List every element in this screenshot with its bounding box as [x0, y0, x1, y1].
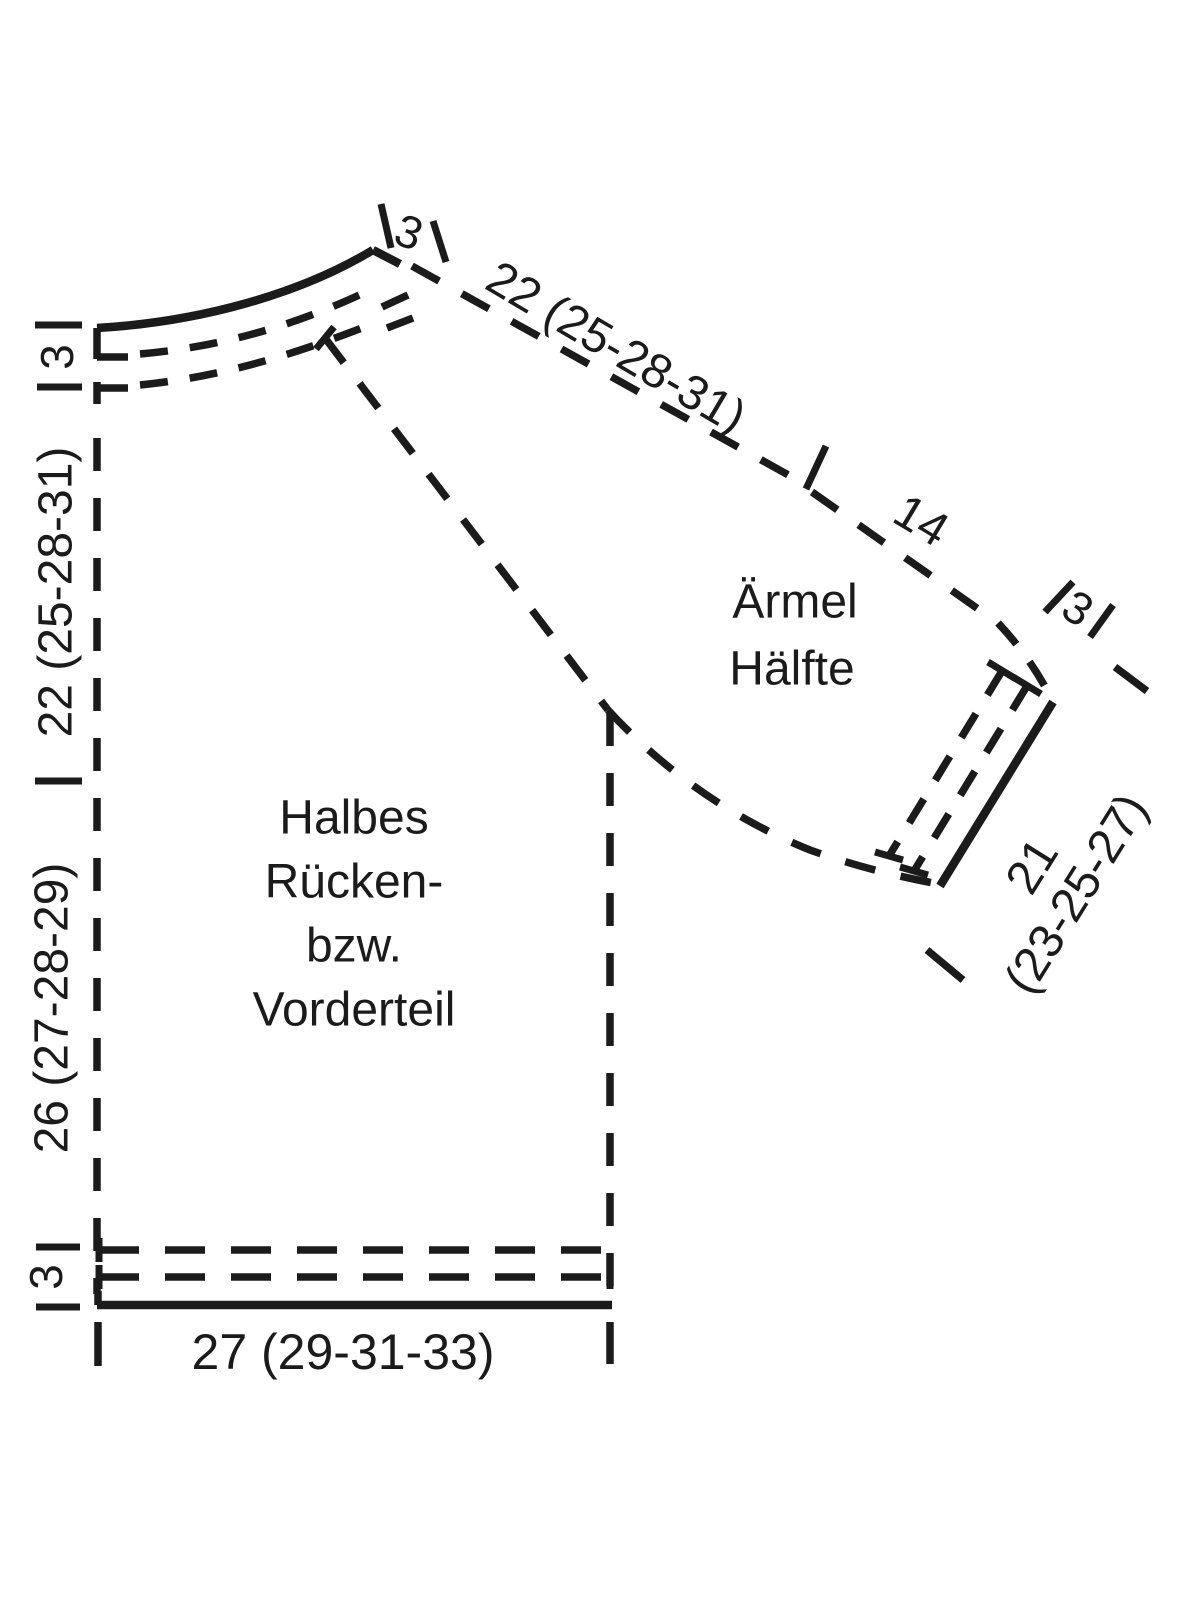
shoulder-junction-dash2 [387, 318, 413, 328]
sleeve-piece-label: Ärmel Hälfte [729, 576, 857, 696]
shoulder-3-bar-right [433, 221, 446, 262]
neckband-depth-label: 3 [31, 344, 83, 370]
neckline-curve [97, 250, 373, 328]
cuff-width-line2: (23-25-27) [995, 785, 1159, 1003]
sleeve-raglan-length-label: 22 (25-28-31) [477, 251, 754, 444]
sleeve-raglan-edge [412, 266, 801, 482]
knitting-pattern-schematic: 3 3 22 (25-28-31) 26 (27-28-29) 3 27 (29… [0, 0, 1200, 1600]
body-label-line4: Vorderteil [253, 984, 456, 1037]
body-raglan-edge [325, 338, 608, 710]
cuff-width-label: 21 (23-25-27) [950, 757, 1158, 1003]
body-label-line3: bzw. [306, 920, 402, 973]
hem-width-label: 27 (29-31-33) [192, 1324, 495, 1380]
body-piece-label: Halbes Rücken- bzw. Vorderteil [253, 792, 456, 1037]
cuff-dashed-line2 [889, 671, 1002, 856]
sleeve-label-line2: Hälfte [729, 643, 854, 696]
body-side-height-label: 26 (27-28-29) [26, 863, 79, 1154]
cuff-3-bar-bottom [1090, 605, 1113, 637]
shoulder-3-bar-left [381, 204, 391, 248]
pattern-schematic-page: 3 3 22 (25-28-31) 26 (27-28-29) 3 27 (29… [0, 0, 1200, 1600]
sleeve-lower-length-label: 14 [884, 485, 957, 558]
hem-band-depth-label: 3 [20, 1264, 72, 1290]
sleeve-raglan-end-tick [806, 446, 826, 489]
cuff-dim-extension-top [1115, 667, 1147, 691]
body-label-line2: Rücken- [265, 856, 444, 909]
body-label-line1: Halbes [279, 792, 428, 845]
sleeve-label-line1: Ärmel [732, 576, 857, 629]
body-raglan-height-label: 22 (25-28-31) [30, 447, 83, 738]
shoulder-band-width-label: 3 [388, 203, 430, 261]
shoulder-junction-dash1 [382, 295, 408, 307]
cuff-line2-bottom-tick [875, 852, 903, 860]
cuff-dim-extension-bottom [927, 950, 963, 980]
